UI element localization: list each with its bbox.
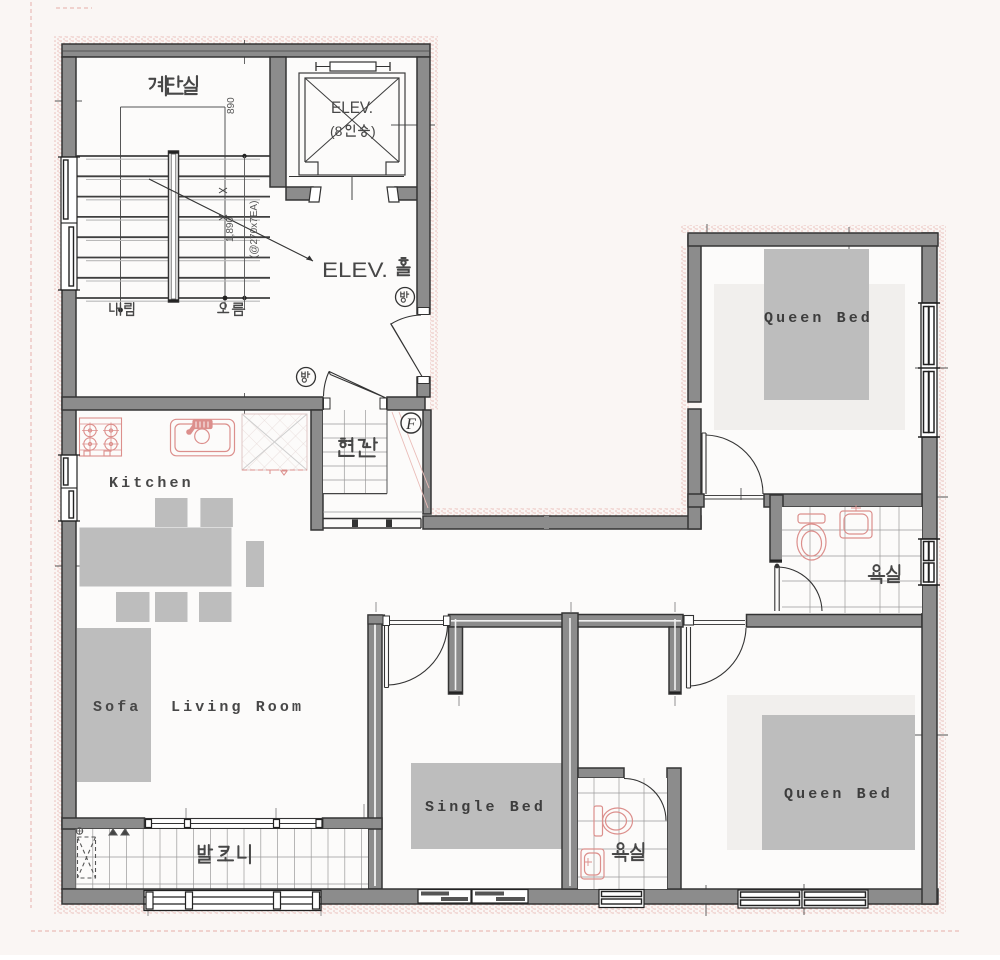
svg-text:(@270x7EA): (@270x7EA)	[249, 201, 260, 258]
svg-text:Kitchen: Kitchen	[109, 475, 194, 492]
svg-text:(8: (8	[330, 123, 343, 139]
svg-text:Sofa: Sofa	[93, 699, 141, 716]
svg-text:Single Bed: Single Bed	[425, 799, 546, 816]
svg-text:): )	[371, 123, 376, 139]
svg-text:Queen Bed: Queen Bed	[764, 310, 873, 327]
svg-text:Queen Bed: Queen Bed	[784, 786, 893, 803]
svg-text:890: 890	[226, 97, 237, 114]
svg-text:Living Room: Living Room	[171, 699, 304, 716]
svg-text:ELEV.: ELEV.	[331, 98, 373, 117]
svg-text:ELEV.: ELEV.	[322, 259, 388, 282]
svg-text:F: F	[405, 416, 416, 433]
